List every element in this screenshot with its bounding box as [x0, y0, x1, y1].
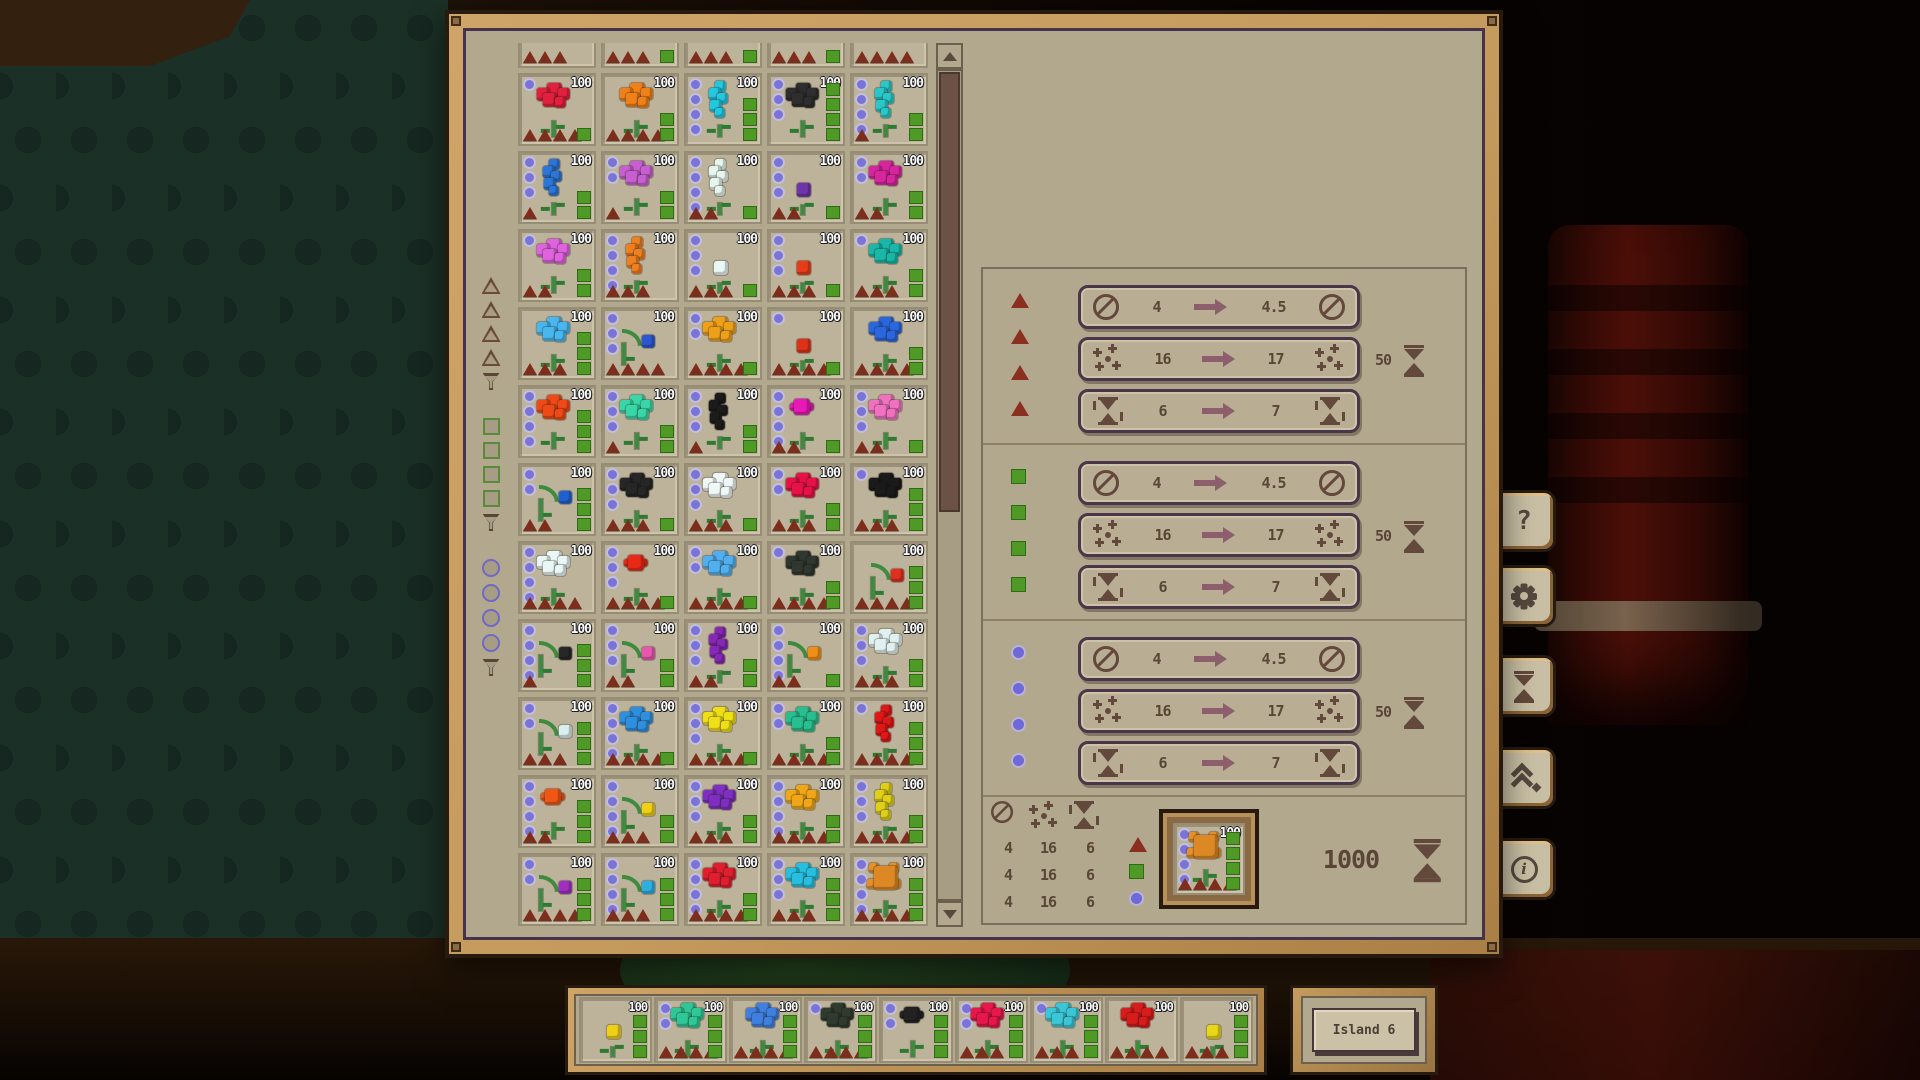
flower-sprite — [591, 1001, 635, 1057]
triangle-trait-icon — [772, 753, 786, 765]
flower-card[interactable]: 100 — [767, 307, 845, 380]
flower-sprite — [699, 548, 743, 604]
square-trait-icon — [577, 722, 591, 735]
trait-squares — [743, 284, 757, 297]
triangle-trait-icon — [636, 831, 650, 843]
flower-sprite — [616, 314, 660, 370]
square-trait-icon — [577, 800, 591, 813]
flower-card[interactable]: 100 — [850, 385, 928, 458]
filter-triangle-icon[interactable] — [482, 277, 501, 294]
trait-squares — [743, 362, 757, 375]
square-trait-icon — [577, 830, 591, 843]
filter-triangle-icon[interactable] — [482, 301, 501, 318]
square-trait-icon — [660, 878, 674, 891]
flower-card[interactable]: 100 — [601, 541, 679, 614]
filter-circle-icon[interactable] — [482, 634, 500, 652]
flower-card[interactable]: 100 — [518, 541, 596, 614]
triangle-trait-icon — [621, 675, 635, 687]
square-trait-icon — [577, 332, 591, 345]
trait-triangles — [855, 831, 914, 843]
flower-sprite — [782, 80, 826, 136]
upgrade-row-sparkles[interactable]: 1617 — [1078, 689, 1360, 733]
flower-card[interactable]: 100 — [684, 697, 762, 770]
square-trait-icon — [909, 566, 923, 579]
flower-card[interactable]: 100 — [601, 775, 679, 848]
trait-triangles — [689, 753, 748, 765]
trait-squares — [826, 737, 840, 765]
trait-triangles — [772, 519, 816, 531]
flower-sprite — [616, 548, 660, 604]
upgrade-value-next: 7 — [1271, 578, 1279, 596]
triangle-trait-icon — [885, 519, 899, 531]
triangle-trait-icon — [704, 675, 718, 687]
arrow-up-icon — [943, 52, 957, 61]
flower-card[interactable]: 100 — [654, 997, 727, 1063]
flower-card[interactable]: 100 — [684, 619, 762, 692]
flower-card[interactable]: 100 — [850, 151, 928, 224]
triangle-trait-icon — [606, 909, 620, 921]
triangle-trait-icon — [636, 285, 650, 297]
grid-scrollbar[interactable] — [936, 43, 963, 927]
triangle-trait-icon — [538, 519, 552, 531]
sparkles-icon — [1093, 520, 1123, 550]
square-trait-icon — [1009, 1015, 1023, 1028]
flower-card[interactable]: 100 — [684, 151, 762, 224]
square-trait-icon — [660, 191, 674, 204]
arrow-right-icon — [1202, 703, 1236, 719]
square-trait-icon — [708, 1015, 722, 1028]
flower-card[interactable]: 100 — [729, 997, 802, 1063]
square-trait-icon — [743, 98, 757, 111]
triangle-trait-icon — [787, 753, 801, 765]
trait-squares — [1226, 832, 1240, 890]
upgrade-value-current: 4 — [1152, 298, 1160, 316]
flower-card[interactable]: 100 — [850, 853, 928, 926]
flower-card[interactable]: 100 — [850, 541, 928, 614]
filter-square-icon[interactable] — [483, 490, 500, 507]
flower-card[interactable]: 100 — [1030, 997, 1103, 1063]
rivet-icon — [451, 16, 461, 26]
triangle-trait-icon — [621, 597, 635, 609]
flower-sprite — [699, 314, 743, 370]
triangle-trait-icon — [606, 129, 620, 141]
flower-card[interactable]: 100 — [601, 697, 679, 770]
summary-value: 4 — [993, 839, 1023, 857]
triangle-trait-icon — [885, 285, 899, 297]
flower-card[interactable]: 100 — [767, 385, 845, 458]
flower-card[interactable]: 100 — [879, 997, 952, 1063]
triangle-trait-icon — [523, 51, 537, 63]
trait-squares — [909, 722, 923, 765]
trait-triangles — [606, 207, 620, 219]
triangle-trait-icon — [523, 207, 537, 219]
flower-card[interactable]: 100 — [518, 463, 596, 536]
square-trait-icon — [577, 503, 591, 516]
flower-card[interactable]: 100 — [767, 43, 845, 68]
triangle-trait-icon — [523, 597, 537, 609]
flower-sprite — [865, 236, 909, 292]
flower-card[interactable]: 100 — [684, 853, 762, 926]
flower-card[interactable]: 100 — [684, 541, 762, 614]
square-trait-icon — [909, 518, 923, 531]
triangle-marker-icon — [1129, 837, 1147, 852]
flower-card[interactable]: 100 — [684, 229, 762, 302]
triangle-trait-icon — [553, 597, 567, 609]
triangle-trait-icon — [772, 831, 786, 843]
total-cost-value: 1000 — [1301, 845, 1401, 874]
flower-card[interactable]: 100 — [767, 619, 845, 692]
diameter-icon — [1093, 294, 1119, 320]
triangle-trait-icon — [538, 597, 552, 609]
game-screen: ?i 1001001001001001001001001001001001001… — [0, 0, 1920, 1080]
trait-squares — [743, 815, 757, 843]
trait-triangles — [606, 597, 665, 609]
triangle-trait-icon — [870, 675, 884, 687]
upgrade-details-box: 44.51617506744.51617506744.5161750674166… — [981, 267, 1467, 925]
upgrade-row-diameter[interactable]: 44.5 — [1078, 461, 1360, 505]
flower-card[interactable]: 100 — [601, 463, 679, 536]
trait-squares — [660, 113, 674, 141]
upgrade-value-next: 17 — [1267, 350, 1283, 368]
triangle-trait-icon — [1125, 1046, 1139, 1058]
flower-sprite — [865, 470, 909, 526]
flower-card[interactable]: 100 — [850, 307, 928, 380]
upgrade-row-cycle[interactable]: 67 — [1078, 389, 1360, 433]
upgrade-row-diameter[interactable]: 44.5 — [1078, 637, 1360, 681]
triangle-trait-icon — [870, 207, 884, 219]
trait-squares — [660, 425, 674, 453]
time-cycle-icon — [1093, 397, 1123, 425]
triangle-trait-icon — [787, 519, 801, 531]
square-trait-icon — [660, 425, 674, 438]
square-trait-icon — [826, 440, 840, 453]
square-trait-icon — [826, 737, 840, 750]
flower-sprite — [865, 548, 909, 604]
flower-card[interactable]: 100 — [601, 229, 679, 302]
rivet-icon — [451, 942, 461, 952]
triangle-trait-icon — [523, 129, 537, 141]
trait-triangles — [855, 519, 899, 531]
square-trait-icon — [577, 893, 591, 906]
island-button[interactable]: Island 6 — [1312, 1008, 1416, 1052]
square-trait-icon — [909, 815, 923, 828]
flower-card[interactable]: 100 — [518, 73, 596, 146]
square-trait-icon — [577, 908, 591, 921]
flower-sprite — [616, 860, 660, 916]
square-trait-icon — [909, 347, 923, 360]
flower-card[interactable]: 100 — [684, 463, 762, 536]
diameter-icon — [1319, 646, 1345, 672]
triangle-trait-icon — [855, 207, 869, 219]
triangle-trait-icon — [606, 519, 620, 531]
flower-card[interactable]: 100 — [850, 43, 928, 68]
flower-sprite — [782, 704, 826, 760]
trait-triangles — [523, 909, 582, 921]
flower-card[interactable]: 100 — [518, 385, 596, 458]
flower-card[interactable]: 100 — [767, 229, 845, 302]
triangle-trait-icon — [606, 831, 620, 843]
scrollbar-thumb[interactable] — [939, 72, 960, 512]
flower-card[interactable]: 100 — [684, 775, 762, 848]
flower-sprite — [616, 704, 660, 760]
triangle-trait-icon — [1035, 1046, 1049, 1058]
flower-card[interactable]: 100 — [601, 307, 679, 380]
trait-squares — [660, 752, 674, 765]
flower-card[interactable]: 100 — [850, 775, 928, 848]
upgrade-value-next: 7 — [1271, 402, 1279, 420]
square-trait-icon — [826, 830, 840, 843]
flower-sprite — [865, 80, 909, 136]
flower-card[interactable]: 100 — [955, 997, 1028, 1063]
flower-card[interactable]: 100 — [601, 43, 679, 68]
square-marker-icon — [1011, 505, 1026, 520]
flower-card[interactable]: 100 — [601, 853, 679, 926]
trait-squares — [577, 191, 591, 219]
square-trait-icon — [826, 752, 840, 765]
triangle-trait-icon — [719, 363, 733, 375]
triangle-trait-icon — [772, 597, 786, 609]
triangle-trait-icon — [1208, 878, 1222, 890]
triangle-trait-icon — [719, 597, 733, 609]
funnel-icon[interactable] — [483, 659, 500, 676]
flower-card[interactable]: 100 — [684, 43, 762, 68]
triangle-marker-icon — [1011, 401, 1029, 416]
filter-square-icon[interactable] — [483, 466, 500, 483]
flower-card[interactable]: 100 — [1105, 997, 1178, 1063]
summary-value: 6 — [1075, 893, 1105, 911]
triangle-trait-icon — [704, 753, 718, 765]
upgrade-row-cycle[interactable]: 67 — [1078, 741, 1360, 785]
square-trait-icon — [708, 1045, 722, 1058]
trait-squares — [660, 50, 674, 63]
triangle-trait-icon — [719, 51, 733, 63]
flower-card[interactable]: 100 — [850, 619, 928, 692]
flower-card[interactable]: 100 — [518, 697, 596, 770]
trait-triangles — [606, 519, 650, 531]
hourglass-icon — [1399, 697, 1429, 727]
square-trait-icon — [660, 830, 674, 843]
time-cycle-icon — [1315, 397, 1345, 425]
trait-squares — [743, 893, 757, 921]
square-trait-icon — [909, 830, 923, 843]
flower-card[interactable]: 100 — [767, 73, 845, 146]
triangle-trait-icon — [802, 285, 816, 297]
circle-marker-icon — [1011, 717, 1026, 732]
trait-triangles — [523, 129, 582, 141]
triangle-trait-icon — [621, 129, 635, 141]
flower-sprite — [533, 782, 577, 838]
square-trait-icon — [660, 518, 674, 531]
upgrade-value-current: 16 — [1154, 526, 1170, 544]
trait-squares — [826, 362, 840, 375]
funnel-icon[interactable] — [483, 373, 500, 390]
rivet-icon — [1487, 942, 1497, 952]
trait-squares — [577, 332, 591, 375]
flower-card[interactable]: 100 — [518, 229, 596, 302]
flower-card[interactable]: 100 — [518, 151, 596, 224]
triangle-trait-icon — [802, 753, 816, 765]
flower-card[interactable]: 100 — [767, 151, 845, 224]
triangle-trait-icon — [704, 519, 718, 531]
flower-sprite — [782, 548, 826, 604]
trait-squares — [826, 83, 840, 141]
triangle-trait-icon — [606, 285, 620, 297]
trait-triangles — [689, 909, 748, 921]
upgrade-cost: 50 — [1375, 697, 1429, 727]
triangle-trait-icon — [538, 285, 552, 297]
flower-card[interactable]: 100 — [601, 385, 679, 458]
diameter-icon — [991, 801, 1013, 823]
arrow-right-icon — [1194, 651, 1228, 667]
trait-squares — [909, 488, 923, 531]
flower-card[interactable]: 100 — [684, 73, 762, 146]
trait-squares — [577, 878, 591, 921]
trait-triangles — [855, 753, 914, 765]
upgrade-row-cycle[interactable]: 67 — [1078, 565, 1360, 609]
flower-card[interactable]: 100 — [767, 853, 845, 926]
flower-card[interactable]: 100 — [518, 853, 596, 926]
triangle-trait-icon — [704, 285, 718, 297]
square-trait-icon — [909, 659, 923, 672]
flower-sprite — [616, 158, 660, 214]
triangle-trait-icon — [870, 597, 884, 609]
trait-squares — [743, 50, 757, 63]
flower-card[interactable]: 100 — [518, 307, 596, 380]
flower-card[interactable]: 100 — [684, 385, 762, 458]
triangle-trait-icon — [855, 51, 869, 63]
square-trait-icon — [826, 284, 840, 297]
flower-card[interactable]: 100 — [850, 229, 928, 302]
upgrade-value-next: 17 — [1267, 702, 1283, 720]
flower-card[interactable]: 100 — [579, 997, 652, 1063]
lighthouse-backdrop — [1548, 225, 1748, 725]
flower-sprite — [699, 470, 743, 526]
filter-circle-icon[interactable] — [482, 609, 500, 627]
summary-value: 4 — [993, 866, 1023, 884]
upgrade-value-current: 4 — [1152, 650, 1160, 668]
trait-squares — [743, 596, 757, 609]
flower-card[interactable]: 100 — [804, 997, 877, 1063]
time-cycle-icon — [1093, 573, 1123, 601]
flower-card[interactable]: 100 — [601, 619, 679, 692]
trait-squares — [660, 878, 674, 921]
triangle-trait-icon — [719, 909, 733, 921]
flower-sprite — [616, 236, 660, 292]
filter-circle-icon[interactable] — [482, 584, 500, 602]
triangle-trait-icon — [885, 831, 899, 843]
square-trait-icon — [909, 206, 923, 219]
square-trait-icon — [826, 893, 840, 906]
triangle-trait-icon — [870, 51, 884, 63]
flower-card[interactable]: 100 — [684, 307, 762, 380]
flower-card[interactable]: 100 — [1173, 823, 1245, 895]
triangle-trait-icon — [538, 909, 552, 921]
upgrade-value-next: 17 — [1267, 526, 1283, 544]
flower-sprite — [699, 80, 743, 136]
scrollbar-track[interactable] — [936, 69, 963, 901]
circle-marker-icon — [1011, 753, 1026, 768]
flower-sprite — [699, 704, 743, 760]
square-trait-icon — [660, 206, 674, 219]
upgrade-cost: 50 — [1375, 521, 1429, 551]
square-trait-icon — [858, 1015, 872, 1028]
summary-value: 6 — [1075, 866, 1105, 884]
square-trait-icon — [826, 206, 840, 219]
triangle-trait-icon — [802, 597, 816, 609]
flower-card[interactable]: 100 — [767, 541, 845, 614]
trait-squares — [577, 488, 591, 531]
filter-triangle-icon[interactable] — [482, 325, 501, 342]
triangle-trait-icon — [553, 51, 567, 63]
trait-squares — [577, 410, 591, 453]
flower-card[interactable]: 100 — [850, 73, 928, 146]
upgrade-row-sparkles[interactable]: 1617 — [1078, 513, 1360, 557]
flower-card[interactable]: 100 — [518, 43, 596, 68]
trait-triangles — [772, 285, 816, 297]
trait-triangles — [855, 51, 914, 63]
trait-triangles — [523, 597, 582, 609]
flower-card[interactable]: 100 — [1180, 997, 1253, 1063]
square-trait-icon — [934, 1030, 948, 1043]
selected-flower-frame: 100 — [1159, 809, 1259, 909]
triangle-trait-icon — [787, 909, 801, 921]
scroll-down-button[interactable] — [936, 901, 963, 927]
square-trait-icon — [577, 644, 591, 657]
flower-card[interactable]: 100 — [601, 73, 679, 146]
time-cycle-icon — [1315, 573, 1345, 601]
triangle-trait-icon — [787, 285, 801, 297]
scroll-up-button[interactable] — [936, 43, 963, 69]
trait-triangles — [855, 285, 899, 297]
trait-squares — [577, 722, 591, 765]
trait-triangles — [606, 51, 650, 63]
flower-sprite — [782, 470, 826, 526]
filter-square-icon[interactable] — [483, 442, 500, 459]
square-trait-icon — [743, 128, 757, 141]
flower-card[interactable]: 100 — [601, 151, 679, 224]
flower-upgrades-panel: 1001001001001001001001001001001001001001… — [445, 10, 1503, 958]
flower-card[interactable]: 100 — [767, 775, 845, 848]
square-trait-icon — [577, 362, 591, 375]
square-trait-icon — [743, 659, 757, 672]
triangle-marker-icon — [1011, 365, 1029, 380]
triangle-trait-icon — [1065, 1046, 1079, 1058]
trait-triangles — [689, 363, 748, 375]
trait-triangles — [772, 831, 831, 843]
flower-card[interactable]: 100 — [518, 619, 596, 692]
flower-card[interactable]: 100 — [767, 697, 845, 770]
filter-square-icon[interactable] — [483, 418, 500, 435]
triangle-trait-icon — [523, 753, 537, 765]
triangle-trait-icon — [749, 1046, 763, 1058]
trait-triangles — [689, 207, 718, 219]
flower-card[interactable]: 100 — [518, 775, 596, 848]
triangle-trait-icon — [719, 519, 733, 531]
upgrade-row-sparkles[interactable]: 1617 — [1078, 337, 1360, 381]
square-trait-icon — [909, 284, 923, 297]
upgrade-value-current: 6 — [1158, 402, 1166, 420]
triangle-trait-icon — [1185, 1046, 1199, 1058]
filter-circle-icon[interactable] — [482, 559, 500, 577]
flower-card[interactable]: 100 — [850, 697, 928, 770]
funnel-icon[interactable] — [483, 514, 500, 531]
upgrade-row-diameter[interactable]: 44.5 — [1078, 285, 1360, 329]
square-trait-icon — [577, 488, 591, 501]
flower-card[interactable]: 100 — [767, 463, 845, 536]
filter-triangle-icon[interactable] — [482, 349, 501, 366]
flower-card[interactable]: 100 — [850, 463, 928, 536]
square-trait-icon — [577, 425, 591, 438]
